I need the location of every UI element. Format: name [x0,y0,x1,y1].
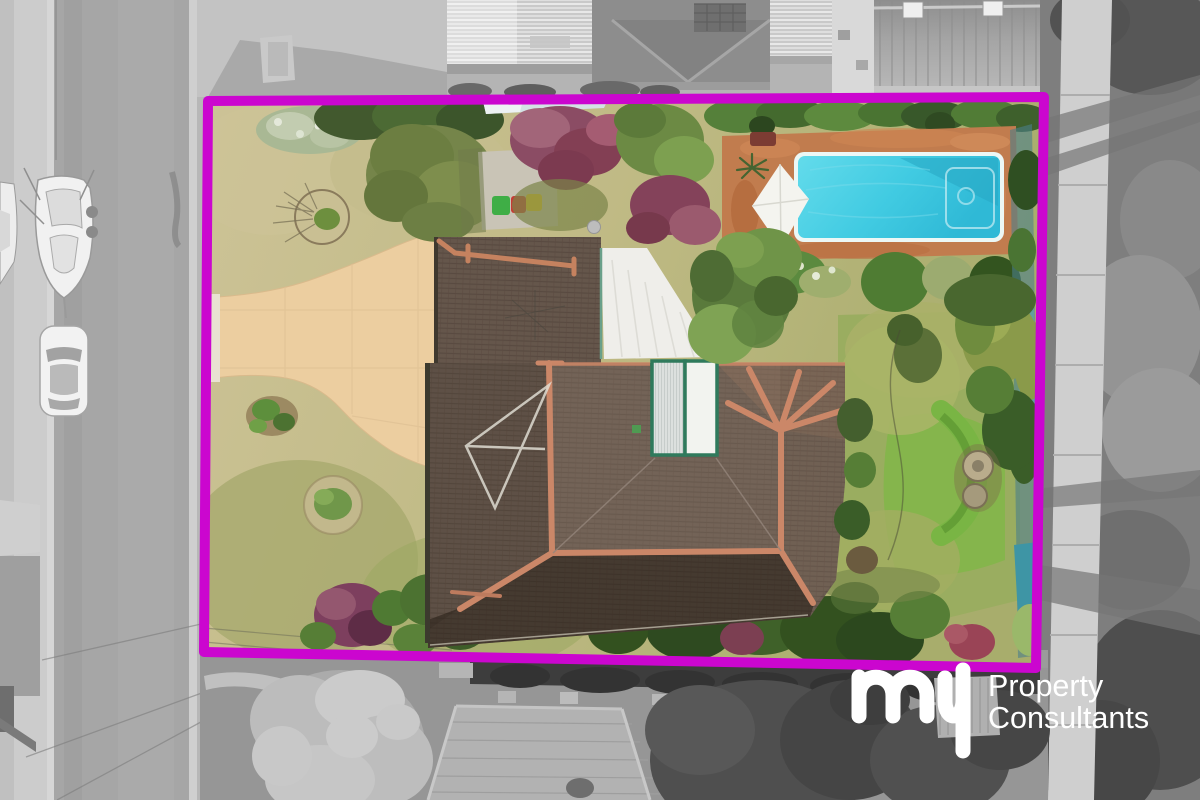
svg-text:Consultants: Consultants [988,701,1149,735]
svg-text:Property: Property [988,669,1104,703]
